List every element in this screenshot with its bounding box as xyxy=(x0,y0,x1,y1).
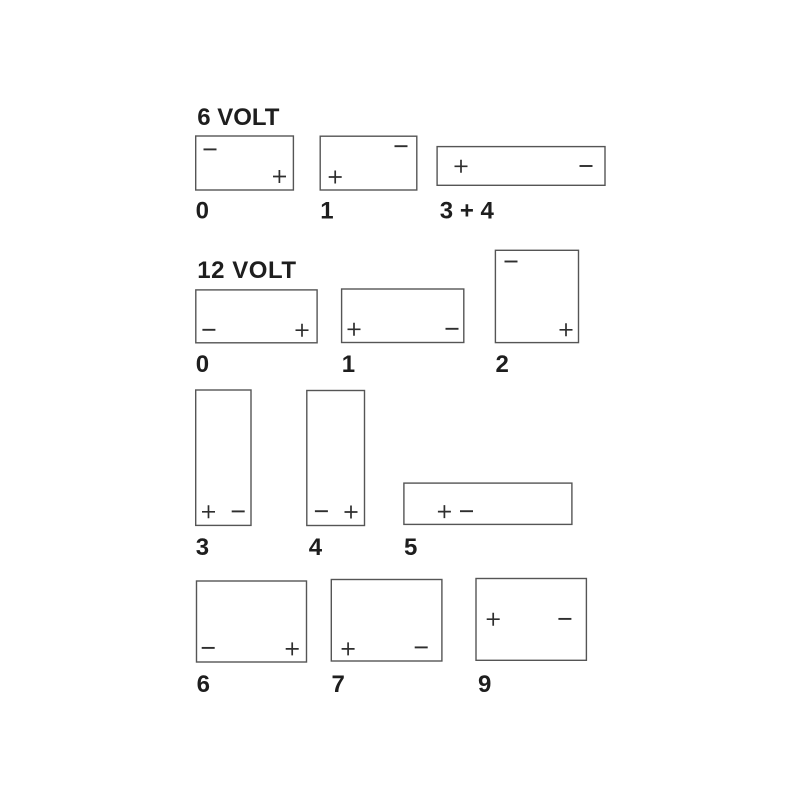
svg-text:12 VOLT: 12 VOLT xyxy=(197,257,296,284)
svg-text:7: 7 xyxy=(332,671,345,698)
svg-text:3: 3 xyxy=(196,534,209,561)
svg-text:3 + 4: 3 + 4 xyxy=(440,197,495,224)
svg-text:1: 1 xyxy=(320,197,333,224)
svg-text:4: 4 xyxy=(309,534,323,561)
svg-text:6 VOLT: 6 VOLT xyxy=(197,104,280,131)
svg-text:0: 0 xyxy=(196,197,209,224)
svg-text:2: 2 xyxy=(496,351,509,378)
svg-text:0: 0 xyxy=(196,351,209,378)
svg-text:1: 1 xyxy=(342,351,355,378)
svg-text:5: 5 xyxy=(404,534,417,561)
svg-text:9: 9 xyxy=(478,671,491,698)
svg-text:6: 6 xyxy=(197,671,210,698)
